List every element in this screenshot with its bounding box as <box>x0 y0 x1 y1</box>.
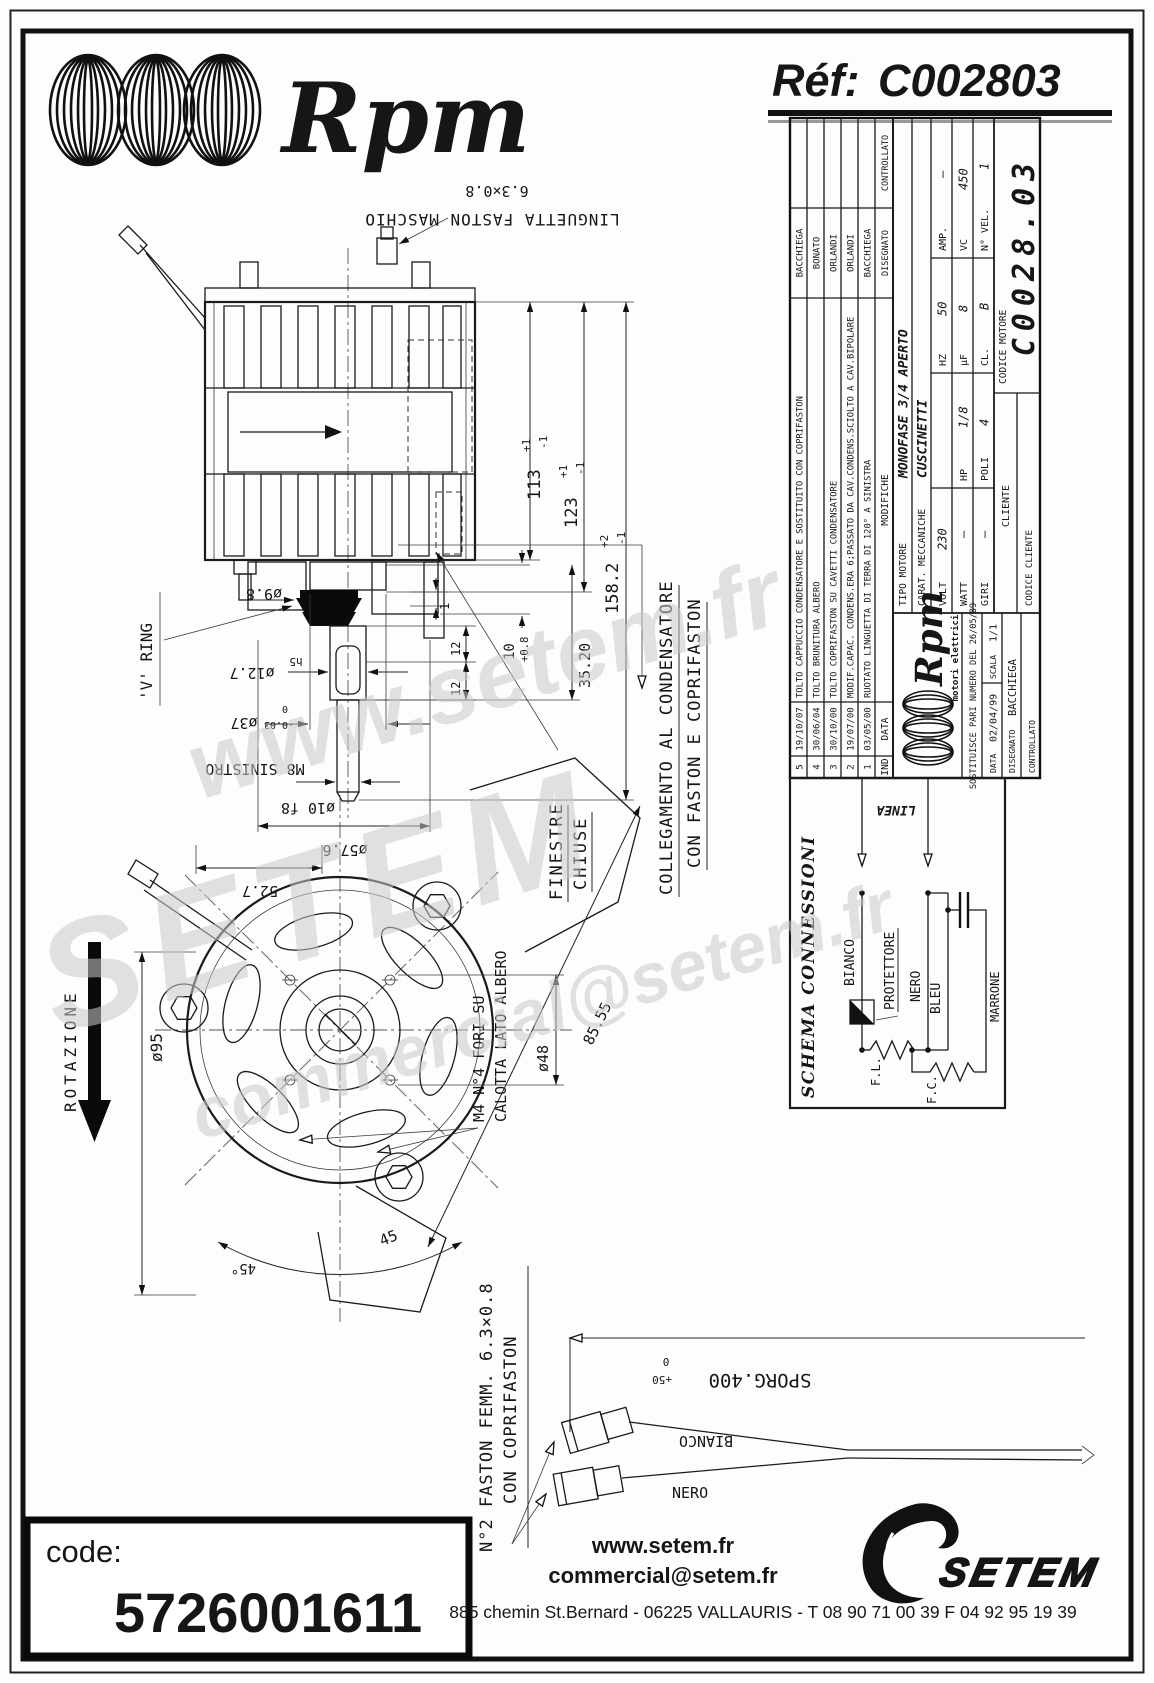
rev-date: 30/10/00 <box>830 707 840 750</box>
v-ring-seal <box>296 590 362 626</box>
label-n2-faston: N°2 FASTON FEMM. 6.3×0.8 <box>477 1282 497 1552</box>
schema-fl: F.L. <box>869 1057 883 1086</box>
amp-value: – <box>936 170 950 178</box>
label-wire-nero: NERO <box>672 1484 708 1502</box>
rev-name: BACCHIEGA <box>864 228 874 277</box>
dim-45deg: 45° <box>231 1260 256 1276</box>
dim-123-tol-minus: -1 <box>574 462 587 475</box>
sostituisce-note: SOSTITUISCE PARI NUMERO DEL 26/05/89 <box>969 603 979 789</box>
disegnato-value: BACCHIEGA <box>1007 658 1019 716</box>
label-linguetta: LINGUETTA FASTON MASCHIO <box>364 210 619 229</box>
dim-113-tol-plus: +1 <box>520 439 533 452</box>
amp-label: AMP. <box>938 227 949 251</box>
rev-date: 30/06/04 <box>813 707 823 750</box>
uf-value: 8 <box>957 305 971 312</box>
volt-label: VOLT <box>938 582 949 606</box>
volt-value: 230 <box>936 528 950 550</box>
disegnato-label: DISEGNATO <box>1008 729 1017 773</box>
label-faston-size: 6.3×0.8 <box>465 182 528 200</box>
dim-sporg-t0: 0 <box>663 1355 670 1368</box>
dim-1: 1 <box>438 603 452 610</box>
drawing-canvas: Rpm Réf: C002803 <box>0 0 1154 1683</box>
rev-text: TOLTO COPRIFASTON SU CAVETTI CONDENSATOR… <box>830 481 840 698</box>
nvel-label: N° VEL. <box>980 209 991 251</box>
hp-label: HP <box>959 469 970 481</box>
rev-hdr-disegnato: DISEGNATO <box>881 230 891 276</box>
hp-value: 1/8 <box>957 406 971 428</box>
codice-motore-value: C0028.03 <box>1007 156 1042 357</box>
dim-158-tol-plus: +2 <box>598 535 611 548</box>
direction-arrow-icon <box>325 425 342 439</box>
dim-sporg: SPORG.400 <box>709 1369 812 1391</box>
code-value: 5726001611 <box>114 1581 422 1644</box>
rev-name: ORLANDI <box>830 234 840 272</box>
poli-value: 4 <box>978 419 992 426</box>
faston-connector-nero <box>553 1463 624 1506</box>
dim-d127: ø12.7 <box>229 664 274 682</box>
rev-hdr-controllato: CONTROLLATO <box>881 135 891 191</box>
brand-logo-text: Rpm <box>279 62 530 175</box>
rev-name: ORLANDI <box>847 234 857 272</box>
footer-email: commercial@setem.fr <box>548 1563 778 1588</box>
rev-name: BACCHIEGA <box>796 228 806 277</box>
ref-value: C002803 <box>878 55 1061 106</box>
cliente-label: CLIENTE <box>1001 485 1012 527</box>
watt-label: WATT <box>959 582 970 606</box>
label-wire-bianco: BIANCO <box>679 1432 733 1450</box>
rev-date: 03/05/00 <box>864 707 874 750</box>
watt-value: – <box>957 530 971 538</box>
title-block: 5 19/10/07 TOLTO CAPPUCCIO CONDENSATORE … <box>790 118 1042 789</box>
rev-text: TOLTO BRUNITURA ALBERO <box>813 581 823 698</box>
rev-date: 19/07/00 <box>847 707 857 750</box>
dim-158-tol-minus: -1 <box>615 532 628 545</box>
hz-value: 50 <box>936 302 950 316</box>
scala-label: SCALA <box>989 655 998 679</box>
rev-hdr-data: DATA <box>880 717 891 740</box>
tipo-motore-value: MONOFASE 3/4 APERTO <box>897 329 912 479</box>
dim-45: 45 <box>377 1226 400 1249</box>
controllato-label: CONTROLLATO <box>1028 720 1037 773</box>
schema-linea: LINEA <box>876 802 915 817</box>
rev-text: MODIF.CAPAC. CONDENS.ERA 6;PASSATO DA CA… <box>847 317 857 698</box>
scanned-drawing-page: Rpm Réf: C002803 <box>0 0 1154 1683</box>
scala-value: 1/1 <box>989 624 1000 642</box>
data-label: DATA <box>989 754 998 773</box>
cl-value: B <box>978 303 992 310</box>
vc-value: 450 <box>957 168 971 190</box>
nvel-value: 1 <box>978 163 992 170</box>
footer: code: 5726001611 www.setem.fr commercial… <box>27 1503 1104 1656</box>
schema-marrone: MARRONE <box>988 971 1002 1022</box>
dim-123-tol-plus: +1 <box>557 465 570 478</box>
faston-connector-bianco <box>562 1404 634 1453</box>
footer-url: www.setem.fr <box>591 1533 735 1558</box>
rev-name: BONATO <box>813 237 823 270</box>
carat-value: CUSCINETTI <box>916 400 931 478</box>
rev-hdr-ind: IND <box>880 758 891 775</box>
poli-label: POLI <box>980 457 991 481</box>
label-v-ring: 'V' RING <box>137 623 156 700</box>
giri-label: GIRI <box>980 582 991 606</box>
rev-ind: 1 <box>864 764 874 769</box>
uf-label: µF <box>959 354 970 366</box>
schema-fc: F.C. <box>925 1075 939 1104</box>
ref-underline <box>768 110 1112 116</box>
label-con-coprifaston: CON COPRIFASTON <box>501 1335 521 1504</box>
dim-113-tol-minus: -1 <box>537 436 550 449</box>
titleblock-tagline: motori elettrici <box>950 614 961 701</box>
ref-label: Réf: <box>772 55 860 106</box>
rotation-arrow-head <box>78 1100 111 1142</box>
tipo-motore-label: TIPO MOTORE <box>898 543 909 606</box>
rev-ind: 4 <box>813 764 823 769</box>
dim-113: 113 <box>525 469 545 500</box>
dim-123: 123 <box>562 497 582 528</box>
rev-ind: 3 <box>830 764 840 769</box>
setem-logo-text: SETEM <box>936 1549 1103 1594</box>
rev-text: RUOTATO LINGUETTA DI TERRA DI 120° A SIN… <box>864 459 874 698</box>
code-label: code: <box>46 1534 122 1569</box>
footer-address: 885 chemin St.Bernard - 06225 VALLAURIS … <box>449 1602 1077 1622</box>
data-value: 02/04/99 <box>989 694 1000 742</box>
codice-cliente-label: CODICE CLIENTE <box>1025 530 1035 606</box>
setem-logo-icon: SETEM <box>863 1503 1104 1603</box>
dim-sporg-tp: +50 <box>652 1373 672 1386</box>
rev-hdr-modifiche: MODIFICHE <box>880 474 891 526</box>
rev-ind: 2 <box>847 764 857 769</box>
hz-label: HZ <box>938 354 949 366</box>
rev-text: TOLTO CAPPUCCIO CONDENSATORE E SOSTITUIT… <box>796 396 806 698</box>
vc-label: VC <box>959 239 970 251</box>
rev-ind: 5 <box>796 764 806 769</box>
faston-detail: N°2 FASTON FEMM. 6.3×0.8 CON COPRIFASTON… <box>477 1266 1094 1552</box>
stator-slots <box>224 306 461 556</box>
carat-label: CARAT. MECCANICHE <box>917 508 928 606</box>
schema-bleu: BLEU <box>929 983 944 1014</box>
rpm-logo-coils-icon <box>50 55 260 165</box>
cl-label: CL. <box>980 348 991 366</box>
giri-value: – <box>978 530 992 538</box>
dim-d127-tol: h5 <box>289 655 302 668</box>
rev-date: 19/10/07 <box>796 707 806 750</box>
schema-nero: NERO <box>909 971 924 1002</box>
